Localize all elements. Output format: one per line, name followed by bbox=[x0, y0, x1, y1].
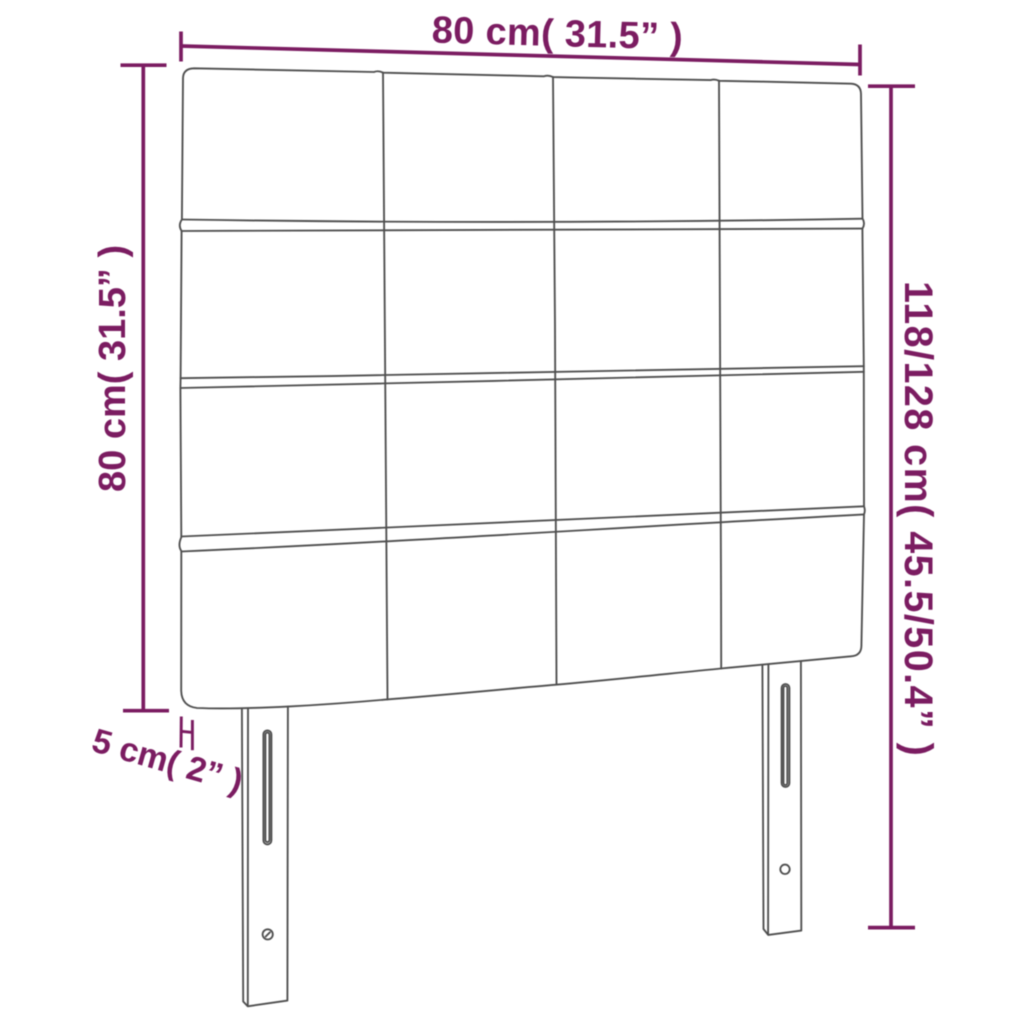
svg-text:80 cm( 31.5” ): 80 cm( 31.5” ) bbox=[431, 10, 683, 59]
svg-text:80 cm( 31.5” ): 80 cm( 31.5” ) bbox=[92, 245, 134, 492]
svg-text:118/128 cm( 45.5/50.4” ): 118/128 cm( 45.5/50.4” ) bbox=[896, 281, 940, 757]
